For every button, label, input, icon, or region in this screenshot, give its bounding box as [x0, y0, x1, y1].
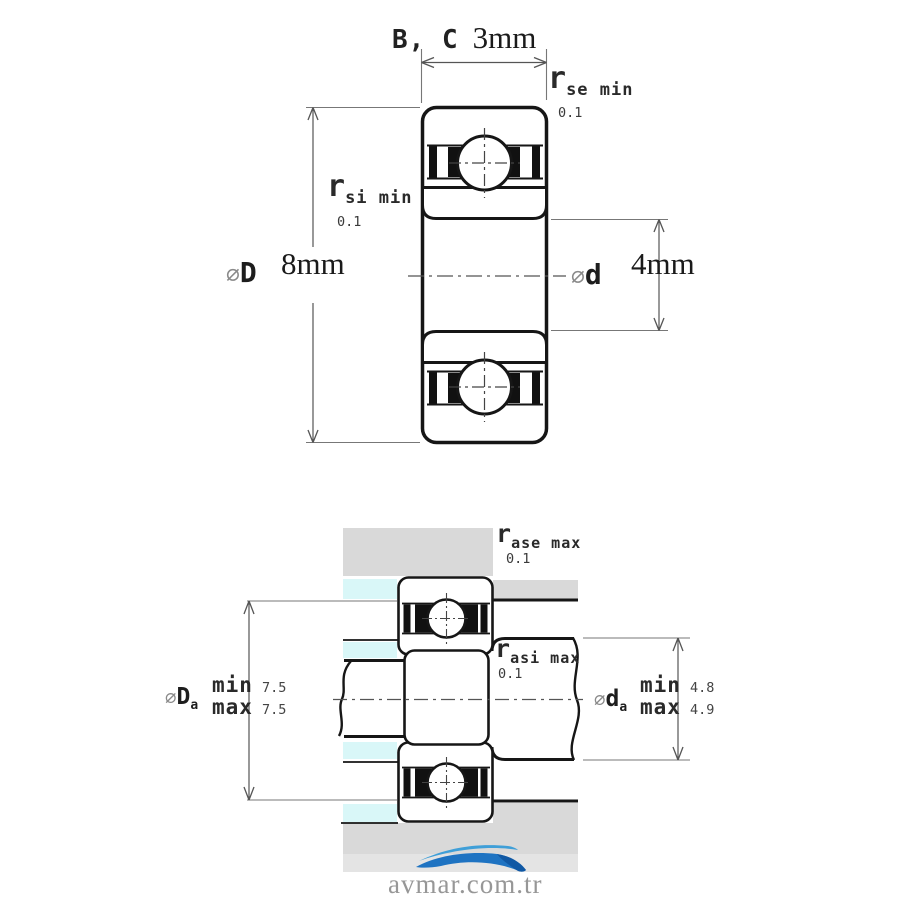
bearing-outline — [408, 108, 566, 443]
r-symbol: r — [327, 169, 345, 204]
shaft-shoulder-symbol: ∅da — [594, 686, 627, 712]
chamfer-outer-label: rse min — [548, 64, 633, 94]
outer-diameter-symbol: ∅D — [226, 256, 257, 289]
shaft-left-section — [339, 661, 406, 737]
diameter-subscript: a — [619, 700, 627, 715]
chamfer-inner-label: rsi min — [327, 172, 412, 202]
watermark-text: avmar.com.tr — [388, 869, 542, 900]
groove-highlights — [343, 579, 397, 822]
diameter-letter: D — [240, 256, 257, 289]
min-value: 4.8 — [690, 677, 714, 699]
technical-drawing — [0, 0, 900, 900]
top-view-drawing — [306, 49, 668, 443]
inner-ring-bore-block — [405, 651, 489, 745]
r-subscript: asi max — [510, 649, 580, 667]
chamfer-inner-value: 0.1 — [337, 214, 361, 230]
bearing-dimension-diagram: B, C 3mm rse min 0.1 rsi min 0.1 ∅D 8mm … — [0, 0, 900, 900]
fillet-shaft-label: rasi max — [495, 636, 580, 661]
housing-shoulder-symbol: ∅Da — [165, 684, 198, 710]
max-label: max — [212, 696, 253, 718]
max-label: max — [640, 696, 681, 718]
r-symbol: r — [495, 634, 510, 663]
diameter-subscript: a — [190, 698, 198, 713]
fillet-shaft-value: 0.1 — [498, 666, 522, 682]
mounted-bearing-lower — [399, 743, 493, 822]
bore-diameter-value: 4mm — [631, 246, 695, 282]
min-label: min — [640, 674, 681, 696]
diameter-letter: d — [605, 686, 619, 712]
r-symbol: r — [496, 519, 511, 548]
diameter-letter: D — [176, 684, 190, 710]
chamfer-outer-value: 0.1 — [558, 105, 582, 121]
housing-shoulder-minmax: min7.5 max7.5 — [212, 674, 286, 718]
shaft-break-left — [339, 661, 351, 736]
mounted-bearing-upper — [399, 578, 493, 655]
r-symbol: r — [548, 61, 566, 96]
width-letters: B, C — [392, 25, 459, 55]
r-subscript: ase max — [511, 534, 581, 552]
diameter-letter: d — [585, 258, 602, 291]
shaft-shoulder-minmax: min4.8 max4.9 — [640, 674, 714, 718]
diameter-icon: ∅ — [226, 262, 240, 288]
min-value: 7.5 — [262, 677, 286, 699]
width-dimension-lines — [422, 49, 547, 103]
max-value: 7.5 — [262, 699, 286, 721]
fillet-housing-label: rase max — [496, 521, 581, 546]
diameter-icon: ∅ — [165, 687, 176, 709]
outer-diameter-value: 8mm — [281, 246, 345, 282]
diameter-icon: ∅ — [571, 264, 585, 290]
r-subscript: si min — [345, 188, 412, 208]
min-label: min — [212, 674, 253, 696]
fillet-housing-value: 0.1 — [506, 551, 530, 567]
bore-diameter-symbol: ∅d — [571, 258, 602, 291]
width-dimension-label: B, C 3mm — [392, 20, 536, 56]
r-subscript: se min — [566, 80, 633, 100]
diameter-icon: ∅ — [594, 689, 605, 711]
max-value: 4.9 — [690, 699, 714, 721]
width-value: 3mm — [473, 20, 537, 56]
